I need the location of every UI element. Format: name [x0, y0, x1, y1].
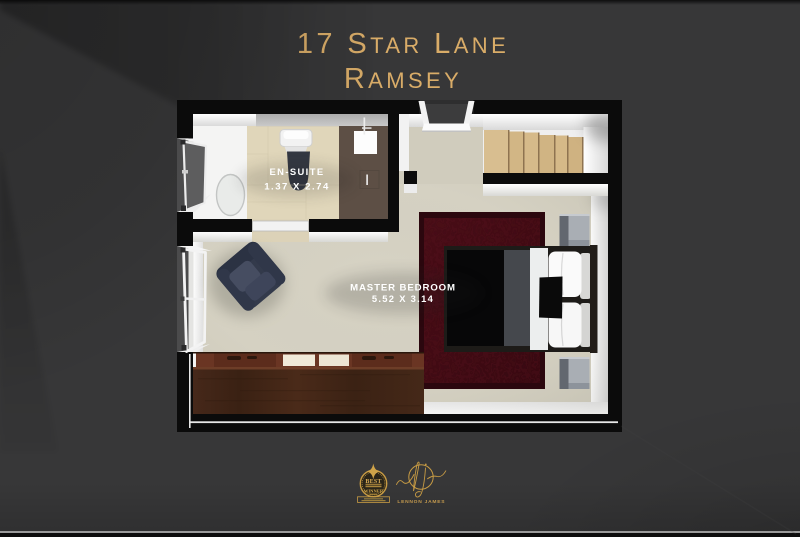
- svg-text:WINNER: WINNER: [364, 489, 384, 494]
- svg-text:5.52 X 3.14: 5.52 X 3.14: [372, 293, 434, 304]
- svg-text:LENNON JAMES: LENNON JAMES: [397, 499, 445, 505]
- svg-text:1.37 X 2.74: 1.37 X 2.74: [264, 181, 330, 192]
- svg-text:EN-SUITE: EN-SUITE: [270, 166, 325, 177]
